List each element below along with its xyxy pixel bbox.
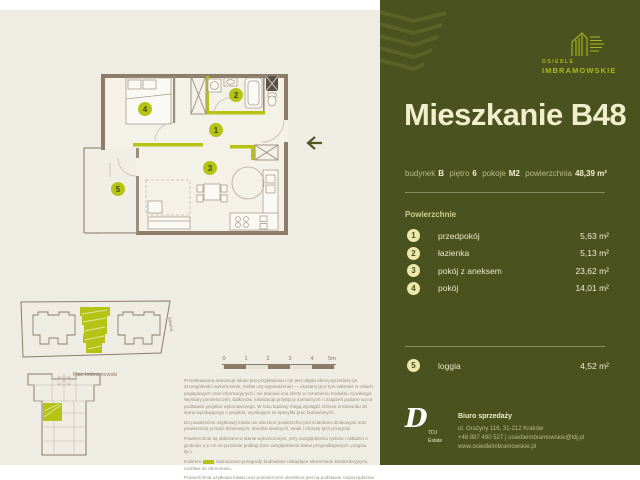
contact-address: ul. Grażyny 116, 31-212 Kraków (458, 425, 584, 434)
room-marker-2: 2 (234, 91, 239, 100)
area-row: 2 łazienka 5,13 m² (407, 245, 609, 263)
tdj-company-name: TDJ Estate (428, 430, 442, 445)
room-number-badge: 4 (407, 282, 420, 295)
areas-heading: Powierzchnie (405, 210, 456, 219)
scale-tick: 1 (244, 356, 247, 362)
room-number-badge: 5 (407, 359, 420, 372)
apartment-title: Mieszkanie B48 (404, 97, 626, 133)
contact-phone-email: +48 887 490 527 | osiedleimbramowskie@td… (458, 434, 584, 443)
room-number-badge: 3 (407, 264, 420, 277)
site-building-highlighted (80, 307, 110, 353)
site-building-left (33, 312, 75, 344)
brand-logo: OSIEDLE IMBRAMOWSKIE (542, 31, 620, 75)
legal-paragraph: Przedstawiona aranżacja lokalu jest przy… (184, 378, 376, 417)
scale-tick: 3 (288, 356, 291, 362)
contact-block: Biuro sprzedaży ul. Grażyny 116, 31-212 … (458, 412, 584, 453)
area-row: 3 pokój z aneksem 23,62 m² (407, 262, 609, 280)
room-number-badge: 2 (407, 247, 420, 260)
legal-disclaimer: Przedstawiona aranżacja lokalu jest przy… (184, 378, 376, 480)
legal-paragraph: Do powierzchni użytkowej lokalu nie wlic… (184, 420, 376, 433)
area-row: 4 pokój 14,01 m² (407, 280, 609, 298)
flyer-page: 1 2 3 4 5 (0, 0, 640, 480)
brand-line1: OSIEDLE (542, 59, 620, 65)
apartment-floor-plan: 1 2 3 4 5 (78, 63, 328, 243)
apartment-details: budynekB piętro6 pokojeM2 powierzchnia48… (405, 169, 607, 178)
areas-list: 1 przedpokój 5,63 m² 2 łazienka 5,13 m² … (407, 227, 609, 297)
detail-floor: piętro6 (449, 169, 476, 178)
scale-ticks: 0 1 2 3 4 5m (222, 356, 336, 364)
scale-tick: 2 (266, 356, 269, 362)
room-marker-5: 5 (116, 185, 121, 194)
legal-paragraph: Powierzchnia użytkowa lokalu oraz pomies… (184, 475, 376, 480)
entrance-arrow-icon (308, 137, 322, 149)
scale-tick: 4 (310, 356, 313, 362)
scale-bar-strip (222, 364, 336, 369)
contact-website: www.osiedleimbramowskie.pl (458, 443, 584, 452)
highlighted-apartment (43, 403, 62, 421)
room-number-badge: 1 (407, 229, 420, 242)
area-row: 5 loggia 4,52 m² (407, 357, 609, 375)
extra-areas-list: 5 loggia 4,52 m² (407, 357, 609, 375)
room-marker-4: 4 (143, 105, 148, 114)
area-row: 1 przedpokój 5,63 m² (407, 227, 609, 245)
building-storey-plan (22, 371, 107, 461)
legal-color-note: Koloremzaznaczono przegrody budowlane ni… (184, 459, 376, 472)
sales-office-label: Biuro sprzedaży (458, 412, 584, 423)
street-name: Siewna (167, 316, 175, 332)
site-plan: Siewna (20, 297, 180, 361)
detail-rooms: pokojeM2 (482, 169, 520, 178)
scale-tick: 5m (328, 356, 336, 362)
detail-area: powierzchnia48,39 m² (525, 169, 607, 178)
plan-sheet: 1 2 3 4 5 (0, 10, 380, 465)
room-marker-3: 3 (208, 164, 213, 173)
green-color-swatch (203, 460, 214, 464)
divider (405, 346, 605, 347)
divider (405, 192, 605, 193)
legal-paragraph: Powierzchnie są obliczane w stanie wykoń… (184, 436, 376, 455)
detail-building: budynekB (405, 169, 444, 178)
room-marker-1: 1 (214, 126, 219, 135)
wave-decoration-icon (380, 6, 452, 80)
brand-building-icon (570, 31, 606, 57)
brand-line2: IMBRAMOWSKIE (542, 66, 620, 75)
info-panel: OSIEDLE IMBRAMOWSKIE Mieszkanie B48 budy… (380, 0, 640, 465)
scale-tick: 0 (222, 356, 225, 362)
scale-bar: 0 1 2 3 4 5m (222, 356, 336, 369)
tdj-logo-icon: D (405, 406, 428, 432)
site-building-right (118, 312, 160, 344)
